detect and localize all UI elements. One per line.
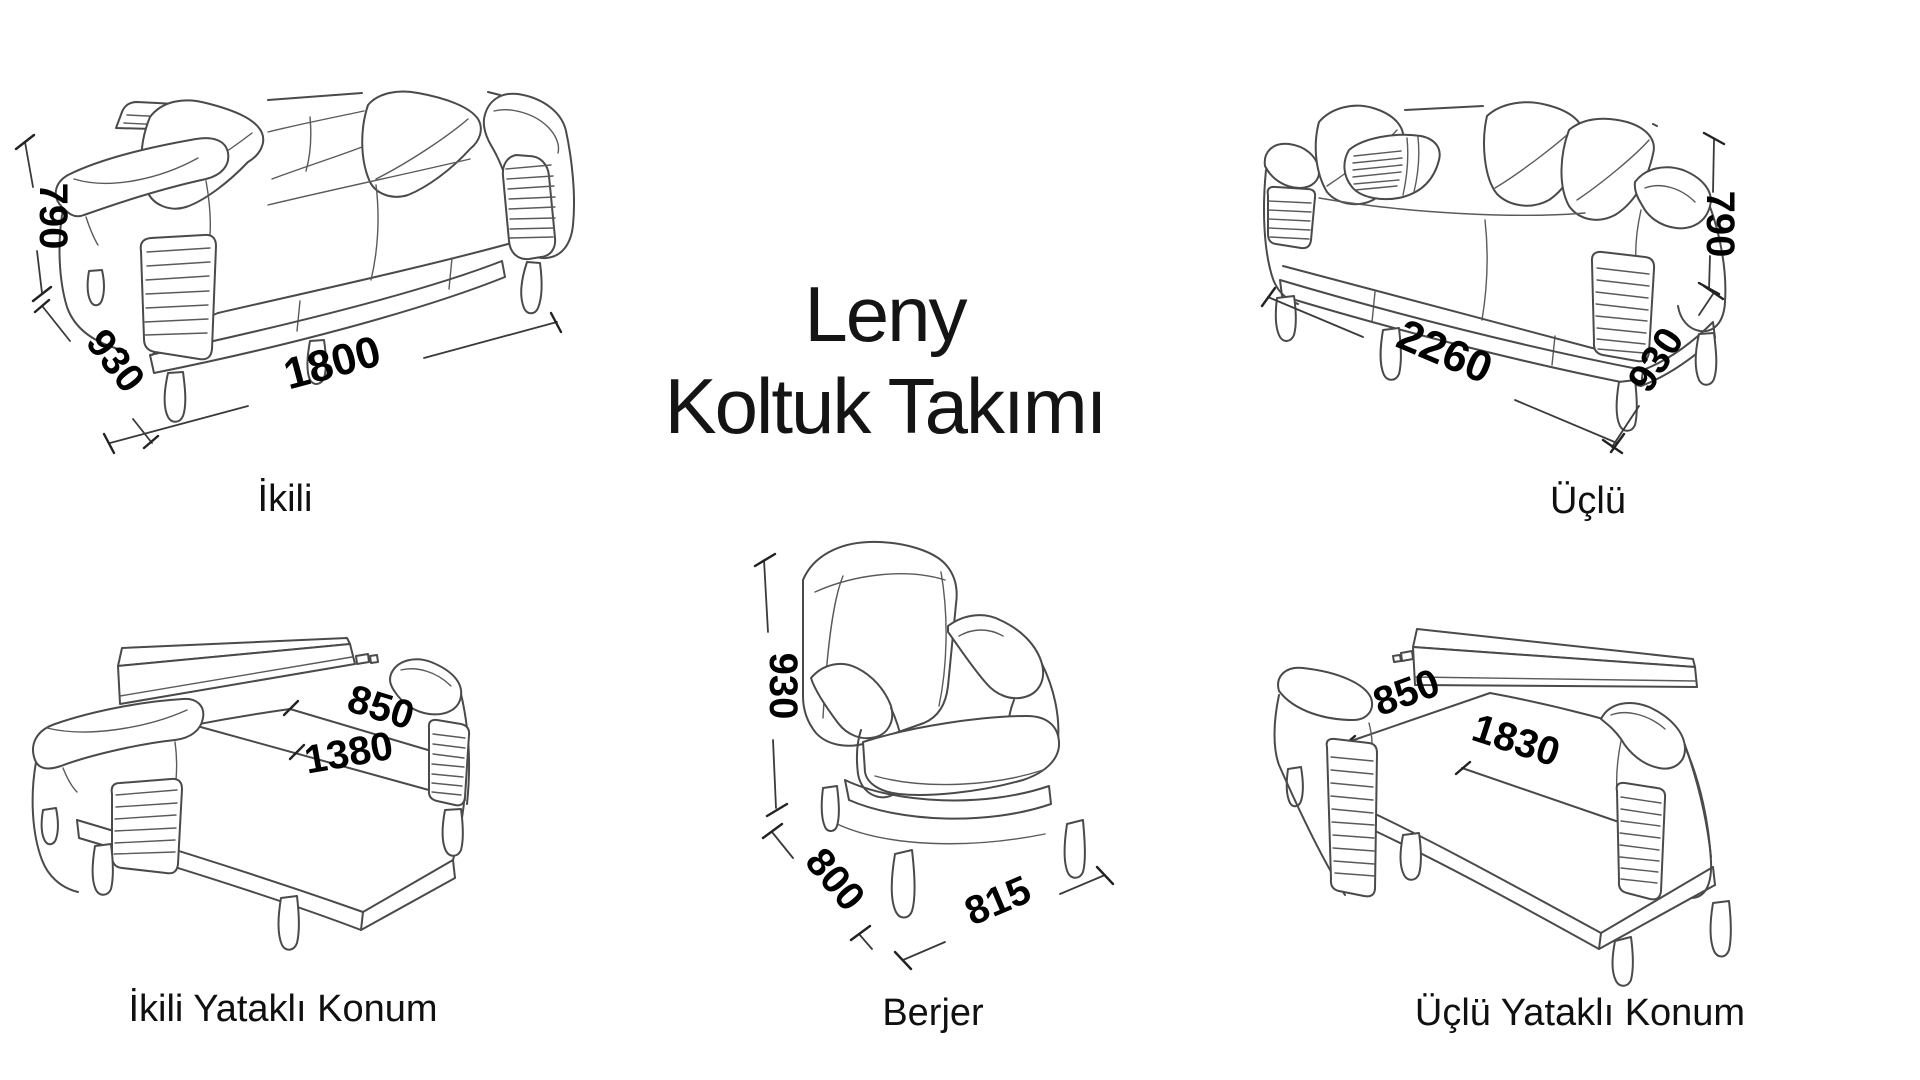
ikili-height-dimension: 790 bbox=[16, 135, 75, 301]
ikili-width-value: 1800 bbox=[279, 327, 386, 400]
uclu-yatakli-caption: Üçlü Yataklı Konum bbox=[1380, 992, 1780, 1035]
ikili-yatakli-line-art: 850 1380 bbox=[25, 598, 645, 994]
ikili-yatakli-bed-length-value: 1380 bbox=[301, 724, 396, 783]
ikili-yatakli-bed-length-dimension: 1380 bbox=[301, 724, 396, 783]
ikili-drawing: 790 930 1800 bbox=[0, 55, 660, 470]
uclu-caption: Üçlü bbox=[1388, 480, 1788, 523]
title-line-2: Koltuk Takımı bbox=[585, 360, 1185, 452]
ikili-depth-dimension: 930 bbox=[35, 300, 158, 448]
uclu-line-art: 2260 930 790 bbox=[1255, 70, 1915, 485]
uclu-yatakli-bed-depth-dimension: 850 bbox=[1368, 661, 1446, 725]
uclu-drawing: 2260 930 790 bbox=[1255, 70, 1915, 490]
uclu-height-dimension: 790 bbox=[1698, 133, 1742, 294]
ikili-yatakli-sofa-art bbox=[33, 638, 469, 950]
berjer-width-value: 815 bbox=[959, 868, 1038, 935]
uclu-yatakli-drawing: 850 1830 bbox=[1265, 595, 1920, 1005]
uclu-width-value: 2260 bbox=[1390, 310, 1499, 393]
berjer-depth-value: 800 bbox=[797, 840, 874, 919]
ikili-depth-value: 930 bbox=[77, 321, 153, 401]
berjer-line-art: 930 800 815 bbox=[745, 528, 1165, 978]
ikili-height-value: 790 bbox=[31, 183, 75, 250]
berjer-height-value: 930 bbox=[761, 653, 805, 720]
berjer-width-dimension: 815 bbox=[895, 867, 1113, 969]
uclu-yatakli-bed-depth-value: 850 bbox=[1368, 661, 1446, 725]
berjer-height-dimension: 930 bbox=[755, 554, 805, 816]
ikili-yatakli-drawing: 850 1380 bbox=[25, 598, 645, 999]
diagram-canvas: Leny Koltuk Takımı bbox=[0, 0, 1920, 1080]
berjer-drawing: 930 800 815 bbox=[745, 528, 1165, 983]
title-line-1: Leny bbox=[585, 268, 1185, 360]
berjer-depth-dimension: 800 bbox=[763, 824, 873, 949]
uclu-height-value: 790 bbox=[1698, 191, 1742, 258]
uclu-yatakli-bed-length-value: 1830 bbox=[1467, 706, 1565, 775]
ikili-caption: İkili bbox=[85, 478, 485, 521]
page-title: Leny Koltuk Takımı bbox=[585, 268, 1185, 452]
uclu-width-dimension: 2260 bbox=[1262, 288, 1624, 452]
ikili-yatakli-caption: İkili Yataklı Konum bbox=[83, 988, 483, 1031]
uclu-yatakli-line-art: 850 1830 bbox=[1265, 595, 1920, 1000]
berjer-caption: Berjer bbox=[733, 992, 1133, 1035]
uclu-yatakli-bed-length-dimension: 1830 bbox=[1467, 706, 1565, 775]
uclu-yatakli-sofa-art bbox=[1275, 629, 1731, 986]
ikili-line-art: 790 930 1800 bbox=[0, 55, 660, 465]
